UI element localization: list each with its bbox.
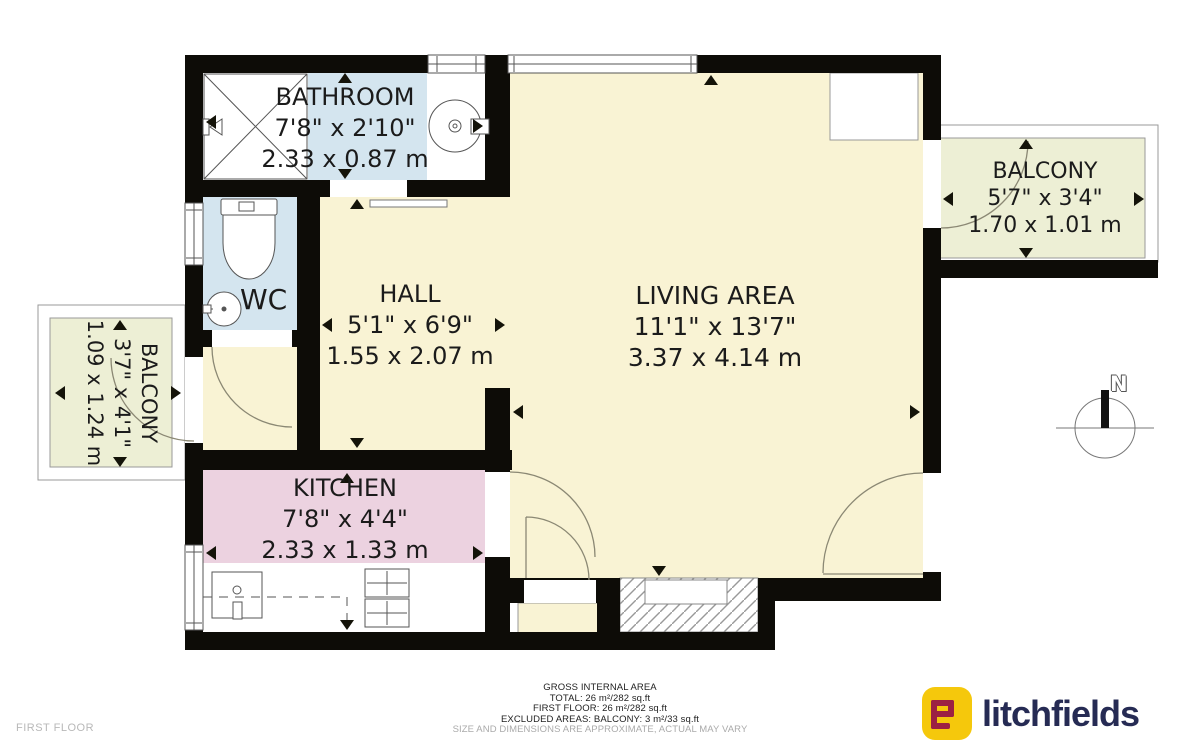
room-dims-metric: 2.33 x 1.33 m [225, 535, 465, 566]
cupboard-door-opening [524, 580, 596, 603]
hall-label: HALL 5'1" x 6'9" 1.55 x 2.07 m [290, 279, 530, 372]
window-left-kitchen [185, 545, 203, 630]
kitchen-sink-icon [212, 572, 262, 619]
wc-door-opening [212, 330, 292, 347]
room-dims-imperial: 7'8" x 2'10" [205, 113, 485, 144]
bathroom-door-opening [330, 180, 407, 197]
room-dims-metric: 3.37 x 4.14 m [565, 342, 865, 373]
brand-name: litchfields [982, 687, 1139, 740]
area-summary-disclaimer: SIZE AND DIMENSIONS ARE APPROXIMATE, ACT… [300, 725, 900, 736]
room-dims-metric: 2.33 x 0.87 m [205, 144, 485, 175]
compass-icon [1056, 390, 1154, 458]
room-dims-imperial: 11'1" x 13'7" [565, 311, 865, 342]
room-name: BALCONY [135, 298, 162, 488]
room-dims-metric: 1.70 x 1.01 m [940, 212, 1150, 239]
toilet-icon [221, 199, 277, 279]
hatched-area [620, 578, 758, 632]
wc-label: WC [240, 283, 287, 316]
window-top-small [428, 55, 485, 73]
hall-radiator [370, 200, 447, 207]
wall-center-lower [485, 557, 510, 635]
wall-hall-bottom [203, 450, 512, 470]
north-label: N [1110, 372, 1128, 396]
wall-cupboard-side [597, 578, 620, 632]
brand-logo: litchfields [922, 687, 1139, 740]
kitchen-label: KITCHEN 7'8" x 4'4" 2.33 x 1.33 m [225, 473, 465, 566]
floorplan-drawing [0, 0, 1200, 750]
balcony-right-label: BALCONY 5'7" x 3'4" 1.70 x 1.01 m [940, 158, 1150, 239]
balcony-right-door-opening [923, 140, 941, 228]
room-dims-imperial: 5'7" x 3'4" [940, 185, 1150, 212]
wall-bottom-left [185, 632, 775, 650]
room-dims-imperial: 7'8" x 4'4" [225, 504, 465, 535]
balcony-left-label: BALCONY 3'7" x 4'1" 1.09 x 1.24 m [78, 298, 162, 488]
brand-logo-icon [922, 687, 972, 740]
room-dims-imperial: 5'1" x 6'9" [290, 310, 530, 341]
area-summary-title: GROSS INTERNAL AREA [300, 683, 900, 694]
bathroom-label: BATHROOM 7'8" x 2'10" 2.33 x 0.87 m [205, 82, 485, 175]
living-notch [830, 73, 918, 140]
room-name: BATHROOM [205, 82, 485, 113]
area-summary-first-floor: FIRST FLOOR: 26 m²/282 sq.ft [300, 704, 900, 715]
window-top-long [508, 55, 697, 73]
floorplan-page: BATHROOM 7'8" x 2'10" 2.33 x 0.87 m WC H… [0, 0, 1200, 750]
vestibule-floor [203, 347, 297, 450]
balcony-left-door-opening [185, 357, 203, 443]
room-dims-imperial: 3'7" x 4'1" [108, 298, 135, 488]
area-summary: GROSS INTERNAL AREA TOTAL: 26 m²/282 sq.… [300, 683, 900, 736]
living-area-label: LIVING AREA 11'1" x 13'7" 3.37 x 4.14 m [565, 280, 865, 373]
entrance-door-opening [923, 473, 941, 572]
kitchen-door-opening [485, 472, 510, 557]
room-name: KITCHEN [225, 473, 465, 504]
window-left-wc [185, 203, 203, 265]
wall-bottom-right [758, 578, 941, 601]
room-dims-metric: 1.09 x 1.24 m [81, 298, 108, 488]
cupboard-floor [518, 603, 600, 633]
room-name: HALL [290, 279, 530, 310]
room-name: LIVING AREA [565, 280, 865, 311]
room-dims-metric: 1.55 x 2.07 m [290, 341, 530, 372]
room-name: BALCONY [940, 158, 1150, 185]
floor-label: FIRST FLOOR [16, 722, 94, 734]
wall-balcony-right-bottom [923, 260, 1158, 278]
